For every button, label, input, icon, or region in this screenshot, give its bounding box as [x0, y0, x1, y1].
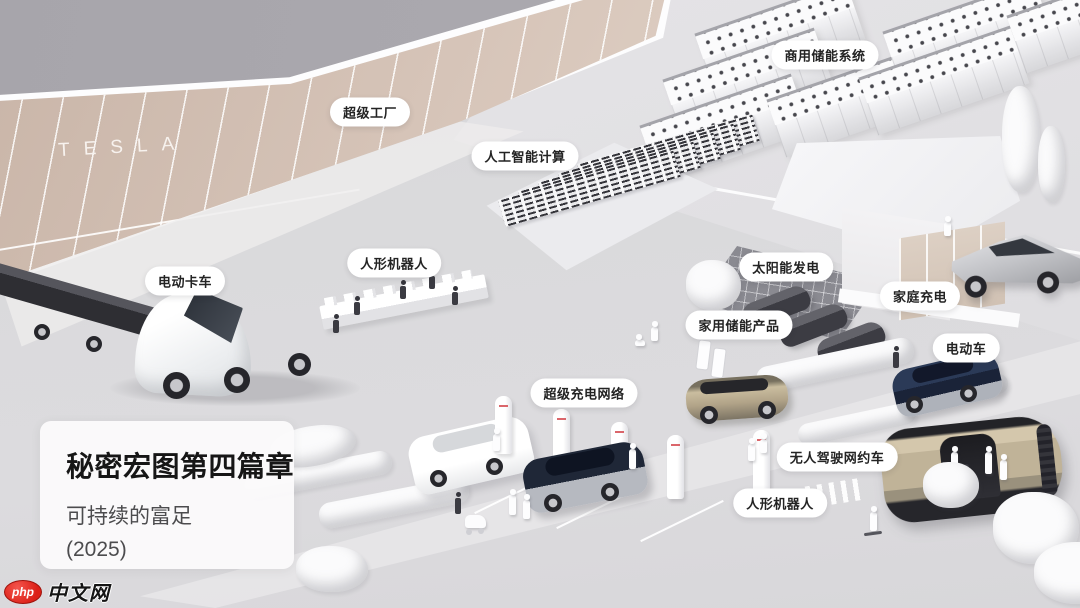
master-plan-illustration: TESLA [0, 0, 1080, 608]
label-home-energy-storage: 家用储能产品 [685, 311, 792, 340]
label-supercharger-network: 超级充电网络 [530, 379, 637, 408]
plan-subtitle: 可持续的富足 [66, 500, 294, 530]
php-logo: php [4, 580, 42, 604]
site-name: 中文网 [47, 577, 110, 606]
label-commercial-energy-storage: 商用储能系统 [771, 41, 878, 70]
label-humanoid-robot-street: 人形机器人 [733, 489, 827, 518]
title-card: 秘密宏图第四篇章 可持续的富足 (2025) [40, 421, 294, 569]
label-electric-car: 电动车 [933, 334, 1000, 363]
site-watermark: php 中文网 [4, 577, 110, 606]
label-robotaxi: 无人驾驶网约车 [777, 443, 898, 472]
label-solar-power: 太阳能发电 [739, 253, 833, 282]
label-home-charging: 家庭充电 [880, 282, 960, 311]
label-ai-computing: 人工智能计算 [471, 142, 578, 171]
label-humanoid-robot-factory: 人形机器人 [347, 249, 441, 278]
plan-year: (2025) [66, 538, 294, 562]
label-electric-truck: 电动卡车 [145, 267, 225, 296]
label-gigafactory: 超级工厂 [330, 98, 410, 127]
plan-title: 秘密宏图第四篇章 [66, 445, 294, 485]
